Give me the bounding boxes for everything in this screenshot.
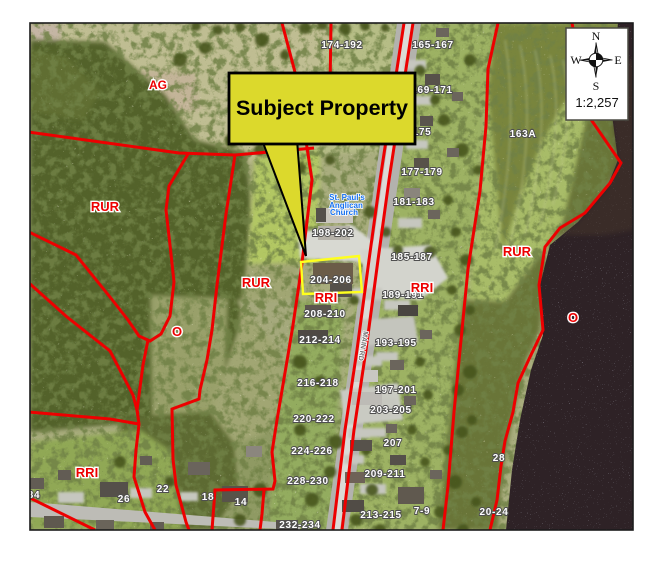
svg-text:28: 28 xyxy=(493,453,506,464)
svg-text:216-218: 216-218 xyxy=(297,378,339,389)
svg-text:RUR: RUR xyxy=(503,244,532,259)
svg-text:224-226: 224-226 xyxy=(291,446,333,457)
svg-text:N: N xyxy=(592,29,601,43)
svg-text:22: 22 xyxy=(157,484,170,495)
svg-text:228-230: 228-230 xyxy=(287,476,329,487)
svg-text:203-205: 203-205 xyxy=(370,405,412,416)
svg-text:26: 26 xyxy=(118,494,131,505)
svg-text:207: 207 xyxy=(384,438,403,449)
svg-text:204-206: 204-206 xyxy=(310,275,352,286)
svg-text:165-167: 165-167 xyxy=(412,40,454,51)
svg-text:O: O xyxy=(172,324,182,339)
svg-text:E: E xyxy=(614,53,621,67)
svg-text:193-195: 193-195 xyxy=(375,338,417,349)
svg-text:174-192: 174-192 xyxy=(321,40,363,51)
svg-text:RRI: RRI xyxy=(76,465,98,480)
svg-text:198-202: 198-202 xyxy=(312,228,354,239)
svg-text:197-201: 197-201 xyxy=(375,385,417,396)
svg-text:185-187: 185-187 xyxy=(391,252,433,263)
svg-text:RRI: RRI xyxy=(411,280,433,295)
svg-text:18: 18 xyxy=(202,492,215,503)
svg-text:7-9: 7-9 xyxy=(414,506,431,517)
svg-text:Church: Church xyxy=(330,208,358,217)
svg-text:177-179: 177-179 xyxy=(401,167,443,178)
svg-text:RUR: RUR xyxy=(242,275,271,290)
svg-text:163A: 163A xyxy=(510,129,537,140)
svg-text:14: 14 xyxy=(235,497,248,508)
svg-text:AG: AG xyxy=(149,78,167,92)
svg-text:Subject Property: Subject Property xyxy=(236,96,408,120)
svg-text:1:2,257: 1:2,257 xyxy=(575,95,618,110)
svg-text:O: O xyxy=(568,310,578,325)
svg-text:RRI: RRI xyxy=(315,290,337,305)
svg-text:20-24: 20-24 xyxy=(479,507,508,518)
svg-text:208-210: 208-210 xyxy=(304,309,346,320)
svg-text:RUR: RUR xyxy=(91,199,120,214)
svg-text:181-183: 181-183 xyxy=(393,197,435,208)
svg-text:S: S xyxy=(593,79,600,93)
svg-text:220-222: 220-222 xyxy=(293,414,335,425)
svg-text:169-171: 169-171 xyxy=(411,85,453,96)
svg-text:213-215: 213-215 xyxy=(360,510,402,521)
svg-text:212-214: 212-214 xyxy=(299,335,341,346)
svg-text:209-211: 209-211 xyxy=(364,469,405,480)
